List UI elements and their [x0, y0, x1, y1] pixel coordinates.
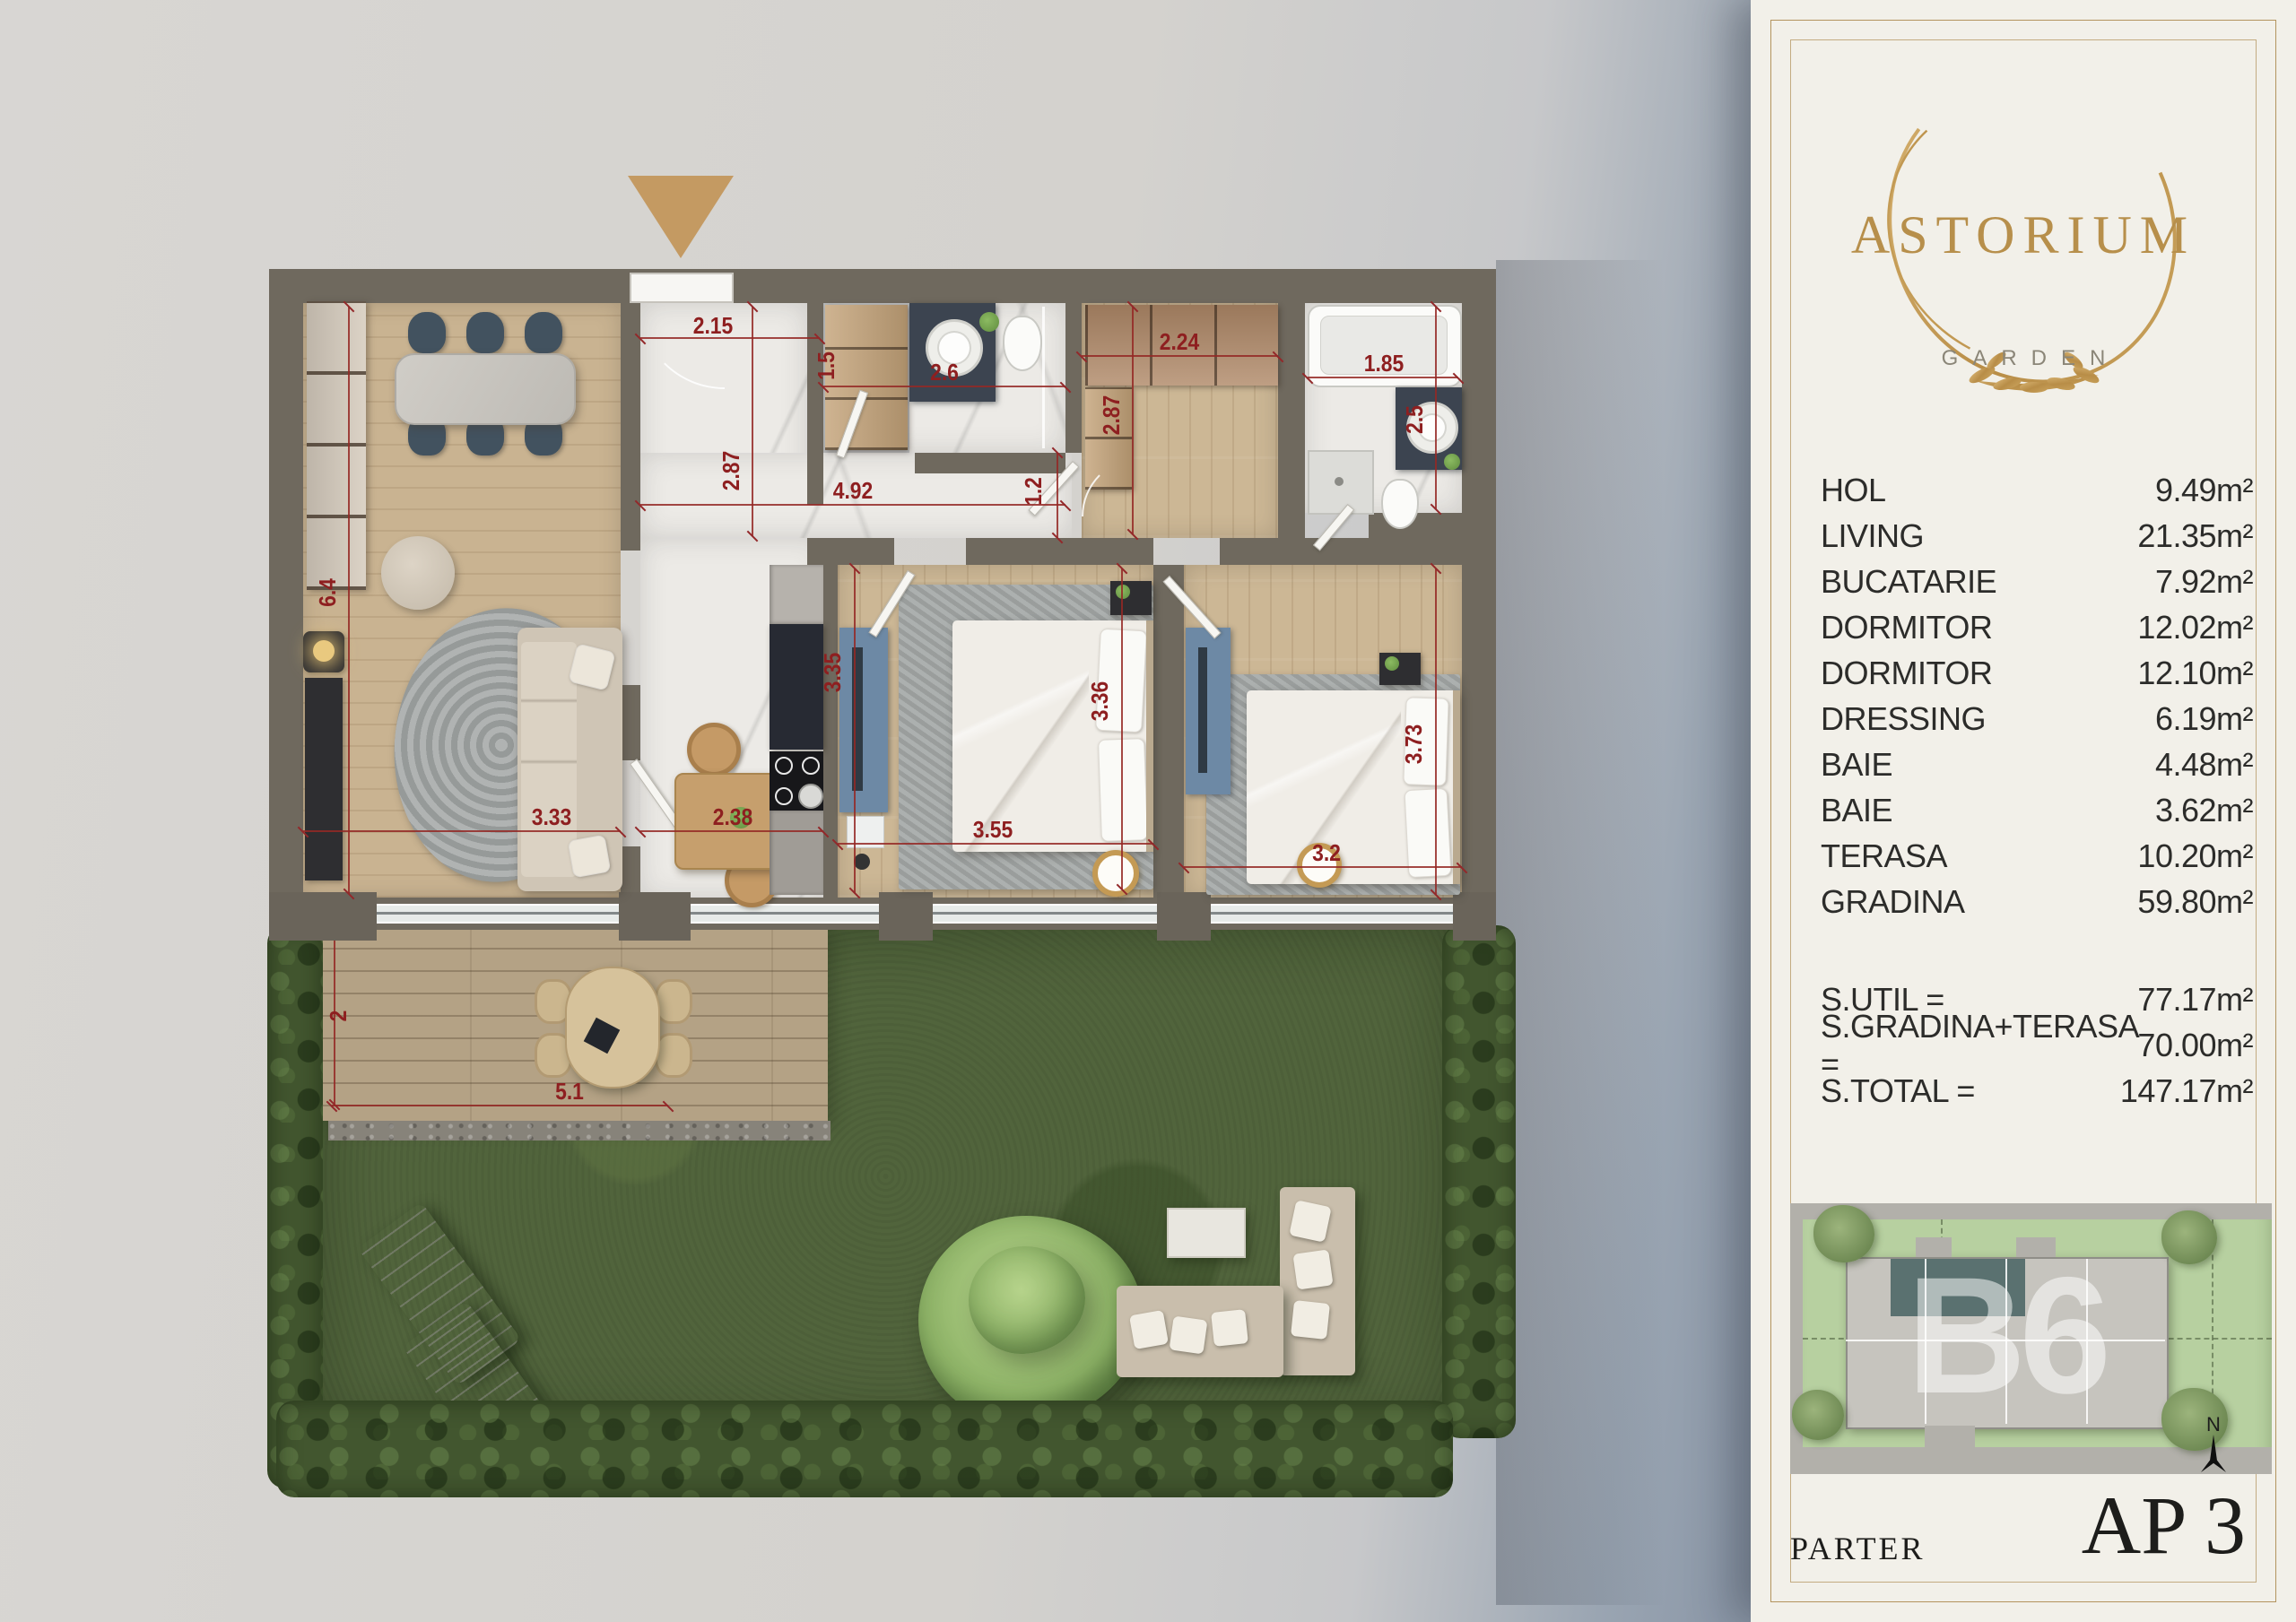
room-label: BUCATARIE: [1821, 563, 1996, 601]
room-label: TERASA: [1821, 837, 1947, 875]
dimension-line: [640, 830, 823, 832]
room-area: 10.20m²: [2137, 837, 2253, 875]
dimension-label: 6.4: [316, 565, 339, 620]
wall: [1220, 538, 1462, 565]
room-area: 4.48m²: [2155, 746, 2253, 784]
bathroom-plant: [979, 312, 999, 332]
bed-pillow: [1098, 738, 1148, 842]
dresser: [1186, 628, 1231, 794]
stool: [854, 854, 870, 870]
wall-pillar: [1453, 892, 1496, 941]
fridge: [770, 624, 823, 750]
wall-right: [1462, 269, 1496, 928]
entrance-marker-icon: [628, 176, 734, 258]
floor-label: PARTER: [1790, 1530, 1926, 1567]
shower-drain: [1335, 477, 1344, 486]
room-row: DRESSING6.19m²: [1821, 698, 2253, 740]
room-row: HOL9.49m²: [1821, 470, 2253, 511]
sofa-pillow: [568, 835, 612, 879]
dimension-label: 2.87: [719, 443, 743, 499]
site-plan-tree: [2161, 1210, 2217, 1264]
dimension-label: 2.6: [917, 360, 972, 384]
site-plan-watermark: B6: [1844, 1237, 2167, 1435]
headboard: [1146, 620, 1153, 852]
dimension-label: 4.92: [825, 479, 881, 502]
dimension-line: [1184, 866, 1462, 868]
kitchen-sink-counter: [770, 811, 823, 895]
dimension-label: 3.2: [1299, 841, 1354, 864]
dimension-label: 1.85: [1356, 351, 1412, 375]
dimension-label: 2.5: [1403, 392, 1426, 447]
sofa-pillow: [1291, 1300, 1330, 1340]
burner: [775, 757, 793, 775]
room-label: LIVING: [1821, 517, 1924, 555]
nightstand: [1379, 653, 1421, 685]
room-row: BAIE3.62m²: [1821, 790, 2253, 831]
dining-chair: [408, 312, 446, 353]
room-area: 21.35m²: [2137, 517, 2253, 555]
dimension-label: 3.73: [1402, 716, 1425, 772]
dimension-line: [1435, 307, 1437, 509]
hedge: [276, 1401, 1453, 1497]
dimension-label: 3.36: [1088, 673, 1111, 729]
unit-label: AP 3: [2082, 1478, 2246, 1573]
total-row: S.GRADINA+TERASA =70.00m²: [1821, 1025, 2253, 1066]
pouf: [381, 536, 455, 610]
wall: [1065, 299, 1082, 453]
wall: [621, 846, 640, 898]
dimension-line: [1435, 568, 1437, 895]
dining-chair: [466, 312, 504, 353]
dimension-label: 2.24: [1152, 330, 1207, 353]
room-area: 6.19m²: [2155, 700, 2253, 738]
room-row: LIVING21.35m²: [1821, 516, 2253, 557]
dimension-label: 3.55: [965, 818, 1021, 841]
logo-title: ASTORIUM: [1751, 204, 2296, 266]
flower-vase: [1385, 656, 1399, 671]
total-label: S.TOTAL =: [1821, 1072, 1975, 1110]
total-row: S.TOTAL =147.17m²: [1821, 1071, 2253, 1112]
room-area: 3.62m²: [2155, 792, 2253, 829]
wall: [621, 685, 640, 760]
wall: [621, 303, 640, 551]
dimension-line: [1057, 453, 1058, 538]
dimension-line: [752, 307, 753, 536]
shower-glass: [1042, 307, 1045, 448]
mirror: [1092, 850, 1139, 897]
sofa-pillow: [1292, 1249, 1333, 1289]
floor-lamp: [313, 640, 335, 662]
room-row: DORMITOR12.10m²: [1821, 653, 2253, 694]
wall: [807, 453, 823, 505]
dimension-label: 2.87: [1100, 387, 1123, 443]
toilet: [1003, 316, 1042, 371]
outdoor-coffee-table: [1167, 1208, 1246, 1258]
dimension-label: 1.2: [1022, 464, 1045, 519]
dimension-line: [348, 307, 350, 894]
burner: [775, 787, 793, 805]
sofa-seat: [521, 642, 577, 877]
site-road: [1790, 1447, 2272, 1474]
burner: [802, 757, 820, 775]
wall-left: [269, 269, 303, 928]
info-panel: ASTORIUM GARDEN HOL9.49m² LIVING21.35m² …: [1751, 0, 2296, 1622]
site-plan: B6 N: [1790, 1203, 2272, 1474]
glass-door: [377, 904, 619, 924]
room-area: 12.10m²: [2137, 655, 2253, 692]
deck-chair: [655, 1033, 692, 1078]
dimension-line: [1132, 307, 1134, 534]
total-value: 70.00m²: [2137, 1027, 2253, 1064]
dimension-line: [823, 386, 1065, 387]
total-value: 77.17m²: [2137, 981, 2253, 1019]
wall-top: [269, 269, 1496, 303]
wall: [823, 565, 838, 898]
deck-chair: [655, 979, 692, 1024]
dimension-label: 3.33: [524, 805, 579, 828]
headboard: [1453, 690, 1460, 884]
dimension-line: [640, 504, 1065, 506]
tv-console: [305, 678, 343, 880]
sofa-pillow: [1211, 1309, 1248, 1347]
sofa-pillow: [1289, 1200, 1331, 1242]
building-shadow: [1496, 260, 1720, 1605]
room-label: DRESSING: [1821, 700, 1986, 738]
site-plan-tree: [1792, 1390, 1844, 1440]
glass-door: [691, 904, 879, 924]
wall: [1278, 299, 1305, 538]
room-area: 7.92m²: [2155, 563, 2253, 601]
flower-vase: [1116, 585, 1130, 599]
pan: [798, 784, 823, 809]
room-row: DORMITOR12.02m²: [1821, 607, 2253, 648]
wall-pillar: [269, 892, 377, 941]
toilet: [1381, 479, 1419, 529]
dimension-label: 2.15: [685, 314, 741, 337]
room-area: 12.02m²: [2137, 609, 2253, 646]
dimension-line: [838, 843, 1153, 845]
nightstand: [1110, 581, 1152, 615]
room-area: 59.80m²: [2137, 883, 2253, 921]
room-label: BAIE: [1821, 746, 1892, 784]
gravel-strip: [328, 1121, 831, 1141]
total-value: 147.17m²: [2120, 1072, 2253, 1110]
wall-pillar: [619, 892, 691, 941]
dimension-line: [1082, 355, 1278, 357]
wall-pillar: [879, 892, 933, 941]
sheet: 2 5.1: [0, 0, 2296, 1622]
room-row: BUCATARIE7.92m²: [1821, 561, 2253, 603]
wall: [807, 538, 894, 565]
room-label: BAIE: [1821, 792, 1892, 829]
sofa-pillow: [1129, 1310, 1169, 1349]
logo-subtitle: GARDEN: [1751, 346, 2296, 371]
room-label: DORMITOR: [1821, 609, 1992, 646]
dimension-label: 2.38: [705, 805, 761, 828]
north-label: N: [2196, 1413, 2231, 1436]
dimension-label: 5.1: [542, 1080, 597, 1103]
dimension-label: 3.35: [821, 645, 844, 700]
dimension-label: 2: [326, 988, 350, 1044]
dining-table: [395, 353, 576, 425]
glass-door: [1211, 904, 1453, 924]
wall-pillar: [1157, 892, 1211, 941]
room-area: 9.49m²: [2155, 472, 2253, 509]
dimension-line: [332, 1105, 668, 1106]
hedge: [1442, 925, 1516, 1438]
kitchen-counter: [770, 565, 823, 624]
kitchen-chair: [687, 723, 741, 776]
bathroom-plant: [1444, 454, 1460, 470]
sofa-pillow: [1170, 1316, 1208, 1355]
room-label: DORMITOR: [1821, 655, 1992, 692]
dining-chair: [525, 312, 562, 353]
room-label: HOL: [1821, 472, 1886, 509]
dimension-line: [303, 830, 621, 832]
room-row: GRADINA59.80m²: [1821, 881, 2253, 923]
dimension-line: [1121, 568, 1123, 889]
room-row: BAIE4.48m²: [1821, 744, 2253, 785]
entrance-door: [630, 273, 734, 303]
room-row: TERASA10.20m²: [1821, 836, 2253, 877]
desk: [839, 628, 888, 812]
glass-door: [933, 904, 1157, 924]
bed-pillow: [1404, 788, 1451, 878]
room-label: GRADINA: [1821, 883, 1965, 921]
bookshelf: [307, 301, 366, 590]
dresser-mat: [1198, 647, 1207, 773]
